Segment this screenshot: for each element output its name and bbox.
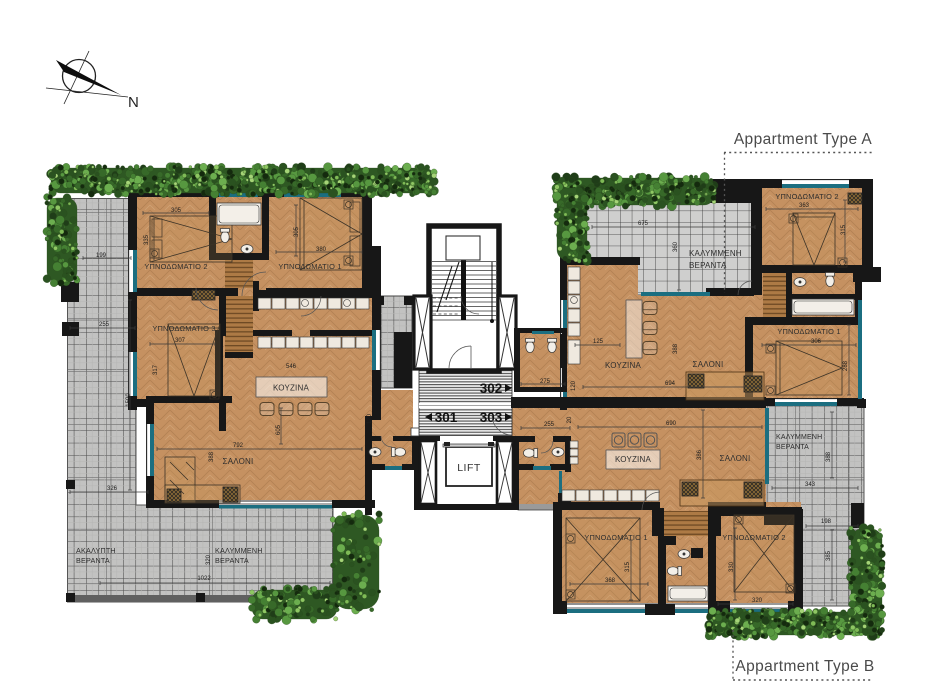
- svg-text:690: 690: [666, 421, 677, 427]
- svg-text:ΣΑΛΟΝΙ: ΣΑΛΟΝΙ: [720, 454, 751, 463]
- svg-text:ΚΑΛΥΜΜΕΝΗ: ΚΑΛΥΜΜΕΝΗ: [776, 434, 822, 441]
- svg-text:198: 198: [821, 519, 832, 525]
- svg-text:335: 335: [144, 234, 150, 245]
- svg-text:368: 368: [605, 578, 616, 584]
- svg-text:ΥΠΝΟΔΩΜΑΤΙΟ 1: ΥΠΝΟΔΩΜΑΤΙΟ 1: [584, 533, 647, 542]
- svg-text:120: 120: [367, 413, 373, 424]
- svg-text:302: 302: [480, 381, 503, 396]
- svg-text:320: 320: [206, 554, 212, 565]
- svg-text:ΚΑΛΥΜΜΕΝΗ: ΚΑΛΥΜΜΕΝΗ: [689, 249, 742, 258]
- svg-text:ΣΑΛΟΝΙ: ΣΑΛΟΝΙ: [693, 360, 724, 369]
- svg-text:792: 792: [233, 443, 244, 449]
- svg-text:388: 388: [826, 451, 832, 462]
- svg-text:ΥΠΝΟΔΩΜΑΤΙΟ 2: ΥΠΝΟΔΩΜΑΤΙΟ 2: [775, 192, 838, 201]
- svg-text:ΣΑΛΟΝΙ: ΣΑΛΟΝΙ: [223, 457, 254, 466]
- svg-text:317: 317: [153, 364, 159, 375]
- svg-text:20: 20: [567, 416, 573, 423]
- svg-text:255: 255: [99, 322, 110, 328]
- svg-text:546: 546: [286, 364, 297, 370]
- svg-text:Appartment Type A: Appartment Type A: [734, 131, 873, 148]
- svg-text:360: 360: [673, 241, 679, 252]
- svg-text:120: 120: [571, 380, 577, 391]
- svg-text:386: 386: [697, 449, 703, 460]
- svg-text:ΒΕΡΑΝΤΑ: ΒΕΡΑΝΤΑ: [776, 444, 809, 451]
- svg-text:320: 320: [752, 598, 763, 604]
- svg-text:ΒΕΡΑΝΤΑ: ΒΕΡΑΝΤΑ: [215, 556, 249, 565]
- svg-text:307: 307: [175, 338, 186, 344]
- svg-text:ΥΠΝΟΔΩΜΑΤΙΟ 1: ΥΠΝΟΔΩΜΑΤΙΟ 1: [777, 327, 840, 336]
- svg-text:N: N: [128, 94, 139, 111]
- svg-text:388: 388: [209, 451, 215, 462]
- svg-text:ΑΚΑΛΥΠΤΗ: ΑΚΑΛΥΠΤΗ: [76, 546, 116, 555]
- svg-text:330: 330: [729, 561, 735, 572]
- svg-text:LIFT: LIFT: [457, 462, 481, 474]
- svg-text:ΥΠΝΟΔΩΜΑΤΙΟ 2: ΥΠΝΟΔΩΜΑΤΙΟ 2: [722, 533, 785, 542]
- svg-text:1022: 1022: [197, 576, 211, 582]
- svg-text:301: 301: [435, 410, 458, 425]
- svg-text:Appartment Type B: Appartment Type B: [735, 658, 874, 675]
- svg-text:ΚΑΛΥΜΜΕΝΗ: ΚΑΛΥΜΜΕΝΗ: [215, 546, 263, 555]
- svg-text:303: 303: [480, 410, 503, 425]
- svg-text:306: 306: [811, 339, 822, 345]
- svg-text:305: 305: [294, 226, 300, 237]
- svg-text:ΥΠΝΟΔΩΜΑΤΙΟ 1: ΥΠΝΟΔΩΜΑΤΙΟ 1: [278, 262, 341, 271]
- svg-text:ΥΠΝΟΔΩΜΑΤΙΟ 3: ΥΠΝΟΔΩΜΑΤΙΟ 3: [152, 324, 215, 333]
- svg-text:385: 385: [826, 550, 832, 561]
- svg-text:ΚΟΥΖΙΝΑ: ΚΟΥΖΙΝΑ: [615, 455, 651, 464]
- svg-text:288: 288: [843, 360, 849, 371]
- svg-text:388: 388: [673, 343, 679, 354]
- svg-text:694: 694: [665, 381, 676, 387]
- svg-text:ΚΟΥΖΙΝΑ: ΚΟΥΖΙΝΑ: [605, 361, 641, 370]
- svg-text:315: 315: [841, 224, 847, 235]
- svg-text:675: 675: [638, 221, 649, 227]
- svg-text:255: 255: [544, 422, 555, 428]
- svg-text:125: 125: [593, 339, 604, 345]
- svg-text:ΒΕΡΑΝΤΑ: ΒΕΡΑΝΤΑ: [689, 261, 727, 270]
- svg-text:ΒΕΡΑΝΤΑ: ΒΕΡΑΝΤΑ: [76, 556, 110, 565]
- svg-text:343: 343: [805, 482, 816, 488]
- svg-text:315: 315: [625, 561, 631, 572]
- svg-text:326: 326: [107, 486, 118, 492]
- svg-text:363: 363: [799, 203, 810, 209]
- svg-text:1590: 1590: [126, 393, 132, 407]
- svg-text:ΥΠΝΟΔΩΜΑΤΙΟ 2: ΥΠΝΟΔΩΜΑΤΙΟ 2: [144, 262, 207, 271]
- svg-text:ΚΟΥΖΙΝΑ: ΚΟΥΖΙΝΑ: [273, 384, 309, 393]
